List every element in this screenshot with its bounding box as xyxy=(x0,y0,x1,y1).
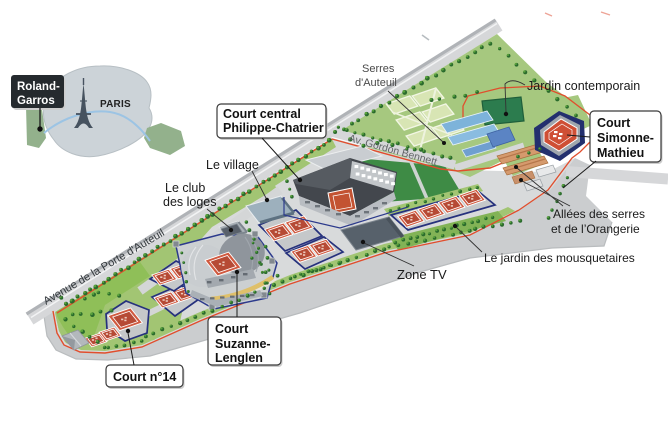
svg-text:Zone TV: Zone TV xyxy=(397,267,447,282)
svg-text:Mathieu: Mathieu xyxy=(597,146,644,160)
svg-text:Court: Court xyxy=(597,116,631,130)
svg-text:Court central: Court central xyxy=(223,107,301,121)
svg-text:Le jardin des mousquetaires: Le jardin des mousquetaires xyxy=(484,251,635,265)
svg-text:Lenglen: Lenglen xyxy=(215,351,263,365)
svg-text:Philippe-Chatrier: Philippe-Chatrier xyxy=(223,121,324,135)
svg-text:Serres: Serres xyxy=(362,63,395,75)
svg-text:d'Auteuil: d'Auteuil xyxy=(355,77,397,89)
svg-text:Simonne-: Simonne- xyxy=(597,131,654,145)
svg-text:Roland-: Roland- xyxy=(17,81,60,93)
svg-text:Le club: Le club xyxy=(165,181,205,195)
svg-text:Garros: Garros xyxy=(17,95,55,107)
svg-text:Suzanne-: Suzanne- xyxy=(215,337,271,351)
svg-text:Court: Court xyxy=(215,322,249,336)
svg-text:Court n°14: Court n°14 xyxy=(113,370,176,384)
svg-text:et de l’Orangerie: et de l’Orangerie xyxy=(551,222,640,236)
svg-text:Le village: Le village xyxy=(206,158,259,172)
svg-text:des loges: des loges xyxy=(163,195,217,209)
svg-text:Allées des serres: Allées des serres xyxy=(553,207,645,221)
svg-text:Jardin contemporain: Jardin contemporain xyxy=(527,79,640,93)
svg-text:PARIS: PARIS xyxy=(100,99,131,110)
